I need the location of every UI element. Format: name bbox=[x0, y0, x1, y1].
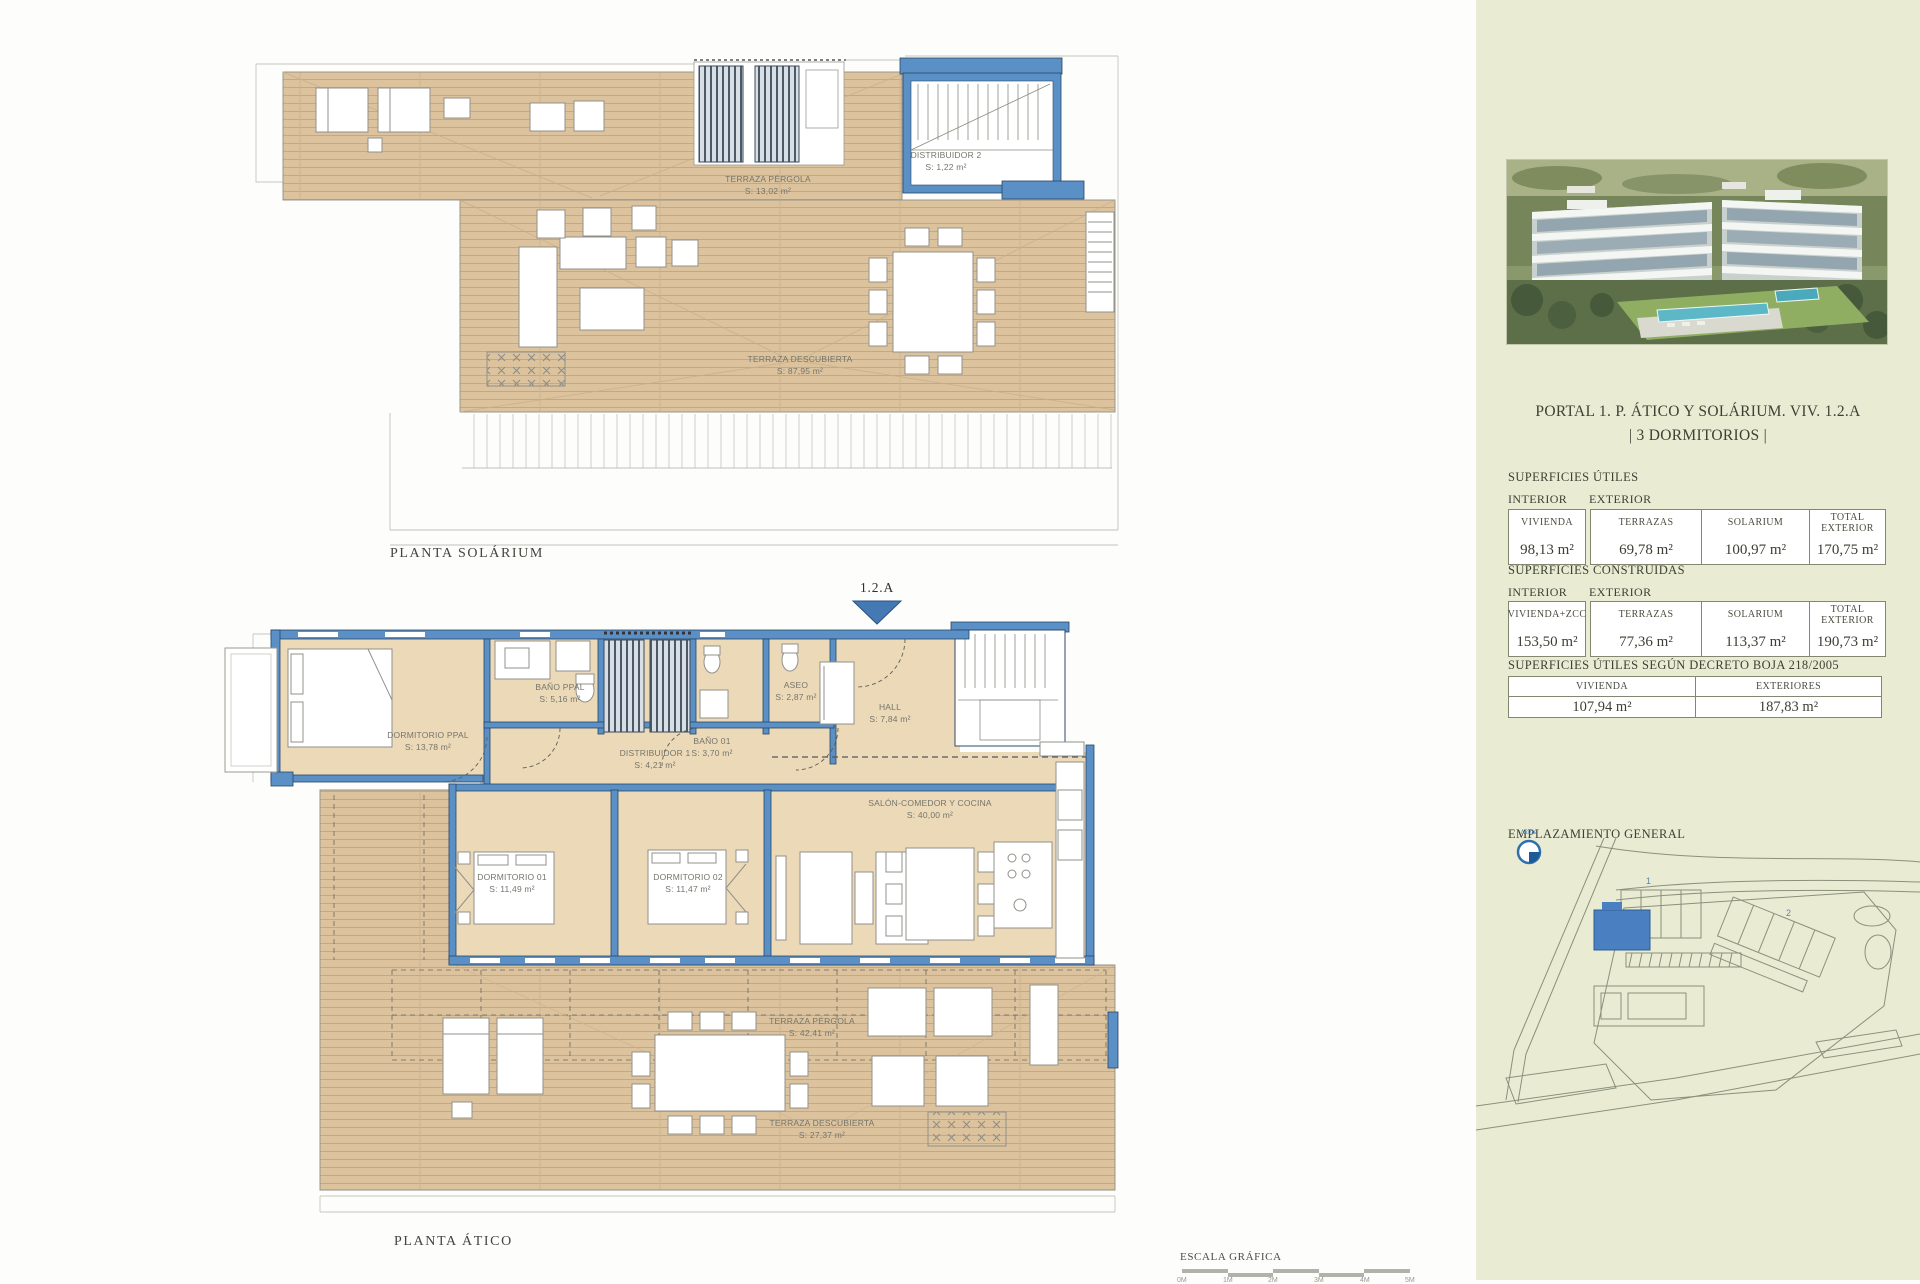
exterior-group-label-2: EXTERIOR bbox=[1589, 585, 1652, 600]
exterior-group-label: EXTERIOR bbox=[1589, 492, 1652, 507]
solarium-plan-title: PLANTA SOLÁRIUM bbox=[390, 546, 544, 562]
solarium-plan bbox=[256, 56, 1118, 545]
building2-map-label: 2 bbox=[1786, 908, 1791, 918]
superficies-construidas-table: VIVIENDA+ZCC 153,50 m² TERRAZAS SOLARIUM… bbox=[1508, 601, 1886, 657]
room-label-dormitorio-ppal: DORMITORIO PPAL S: 13,78 m² bbox=[387, 730, 469, 754]
atico-stairs bbox=[951, 622, 1069, 746]
unit-pointer-triangle bbox=[853, 601, 901, 624]
room-label-dormitorio-02: DORMITORIO 02 S: 11,47 m² bbox=[653, 872, 723, 896]
unit-marker-label: 1.2.A bbox=[860, 580, 894, 596]
room-label-bano-ppal: BAÑO PPAL S: 5,16 m² bbox=[535, 682, 584, 706]
superficies-utiles-table: VIVIENDA 98,13 m² TERRAZAS SOLARIUM TOTA… bbox=[1508, 509, 1886, 565]
room-label-distribuidor-1: DISTRIBUIDOR 1 S: 4,21 m² bbox=[620, 748, 691, 772]
utiles-exterior-box: TERRAZAS SOLARIUM TOTAL EXTERIOR 69,78 m… bbox=[1590, 509, 1886, 565]
room-label-solarium-terraza-descubierta: TERRAZA DESCUBIERTA S: 87,95 m² bbox=[747, 354, 852, 378]
solarium-trellis bbox=[390, 412, 1118, 545]
floor-plan-area: TERRAZA PÉRGOLA S: 13,02 m² DISTRIBUIDOR… bbox=[0, 0, 1476, 1280]
sheet-title: PORTAL 1. P. ÁTICO Y SOLÁRIUM. VIV. 1.2.… bbox=[1476, 400, 1920, 448]
atico-plan bbox=[225, 601, 1118, 1212]
north-compass-icon bbox=[1518, 841, 1540, 863]
room-label-distribuidor-2: DISTRIBUIDOR 2 S: 1,22 m² bbox=[911, 150, 982, 174]
atico-plan-title: PLANTA ÁTICO bbox=[394, 1234, 513, 1250]
section-title-superficies-construidas: SUPERFICIES CONSTRUIDAS bbox=[1508, 563, 1685, 578]
info-sidebar: PORTAL 1. P. ÁTICO Y SOLÁRIUM. VIV. 1.2.… bbox=[1476, 0, 1920, 1280]
room-label-salon: SALÓN-COMEDOR Y COCINA S: 40,00 m² bbox=[868, 798, 992, 822]
boja-box: VIVIENDA EXTERIORES 107,94 m² 187,83 m² bbox=[1508, 676, 1882, 718]
sheet-title-line2: | 3 DORMITORIOS | bbox=[1476, 424, 1920, 448]
construidas-interior-box: VIVIENDA+ZCC 153,50 m² bbox=[1508, 601, 1586, 657]
plan-sheet: { "plans": { "solarium": { "title": "PLA… bbox=[0, 0, 1920, 1280]
interior-group-label: INTERIOR bbox=[1508, 492, 1567, 507]
room-label-dormitorio-01: DORMITORIO 01 S: 11,49 m² bbox=[477, 872, 547, 896]
room-label-terraza-descubierta: TERRAZA DESCUBIERTA S: 27,37 m² bbox=[769, 1118, 874, 1142]
solarium-stair-core bbox=[900, 58, 1084, 199]
room-label-hall: HALL S: 7,84 m² bbox=[869, 702, 910, 726]
room-label-aseo: ASEO S: 2,87 m² bbox=[775, 680, 816, 704]
site-location-map bbox=[1476, 838, 1920, 1280]
atico-side-balcony bbox=[225, 648, 277, 772]
sheet-title-line1: PORTAL 1. P. ÁTICO Y SOLÁRIUM. VIV. 1.2.… bbox=[1476, 400, 1920, 424]
section-title-boja: SUPERFICIES ÚTILES SEGÚN DECRETO BOJA 21… bbox=[1508, 658, 1839, 673]
room-label-bano-01: BAÑO 01 S: 3,70 m² bbox=[691, 736, 732, 760]
room-label-solarium-terraza-pergola: TERRAZA PÉRGOLA S: 13,02 m² bbox=[725, 174, 811, 198]
building-render-photo bbox=[1506, 159, 1888, 345]
boja-table: VIVIENDA EXTERIORES 107,94 m² 187,83 m² bbox=[1508, 676, 1882, 718]
scale-label: ESCALA GRÁFICA bbox=[1180, 1251, 1282, 1263]
scale-bar bbox=[1182, 1269, 1410, 1277]
room-label-terraza-pergola: TERRAZA PÉRGOLA S: 42,41 m² bbox=[769, 1016, 855, 1040]
utiles-interior-box: VIVIENDA 98,13 m² bbox=[1508, 509, 1586, 565]
interior-group-label-2: INTERIOR bbox=[1508, 585, 1567, 600]
highlighted-building-block bbox=[1594, 910, 1650, 950]
building1-map-label: 1 bbox=[1646, 876, 1651, 886]
construidas-exterior-box: TERRAZAS SOLARIUM TOTAL EXTERIOR 77,36 m… bbox=[1590, 601, 1886, 657]
solarium-pergola-louvres bbox=[694, 62, 844, 165]
section-title-superficies-utiles: SUPERFICIES ÚTILES bbox=[1508, 470, 1638, 485]
north-label: Norte bbox=[1514, 829, 1544, 836]
